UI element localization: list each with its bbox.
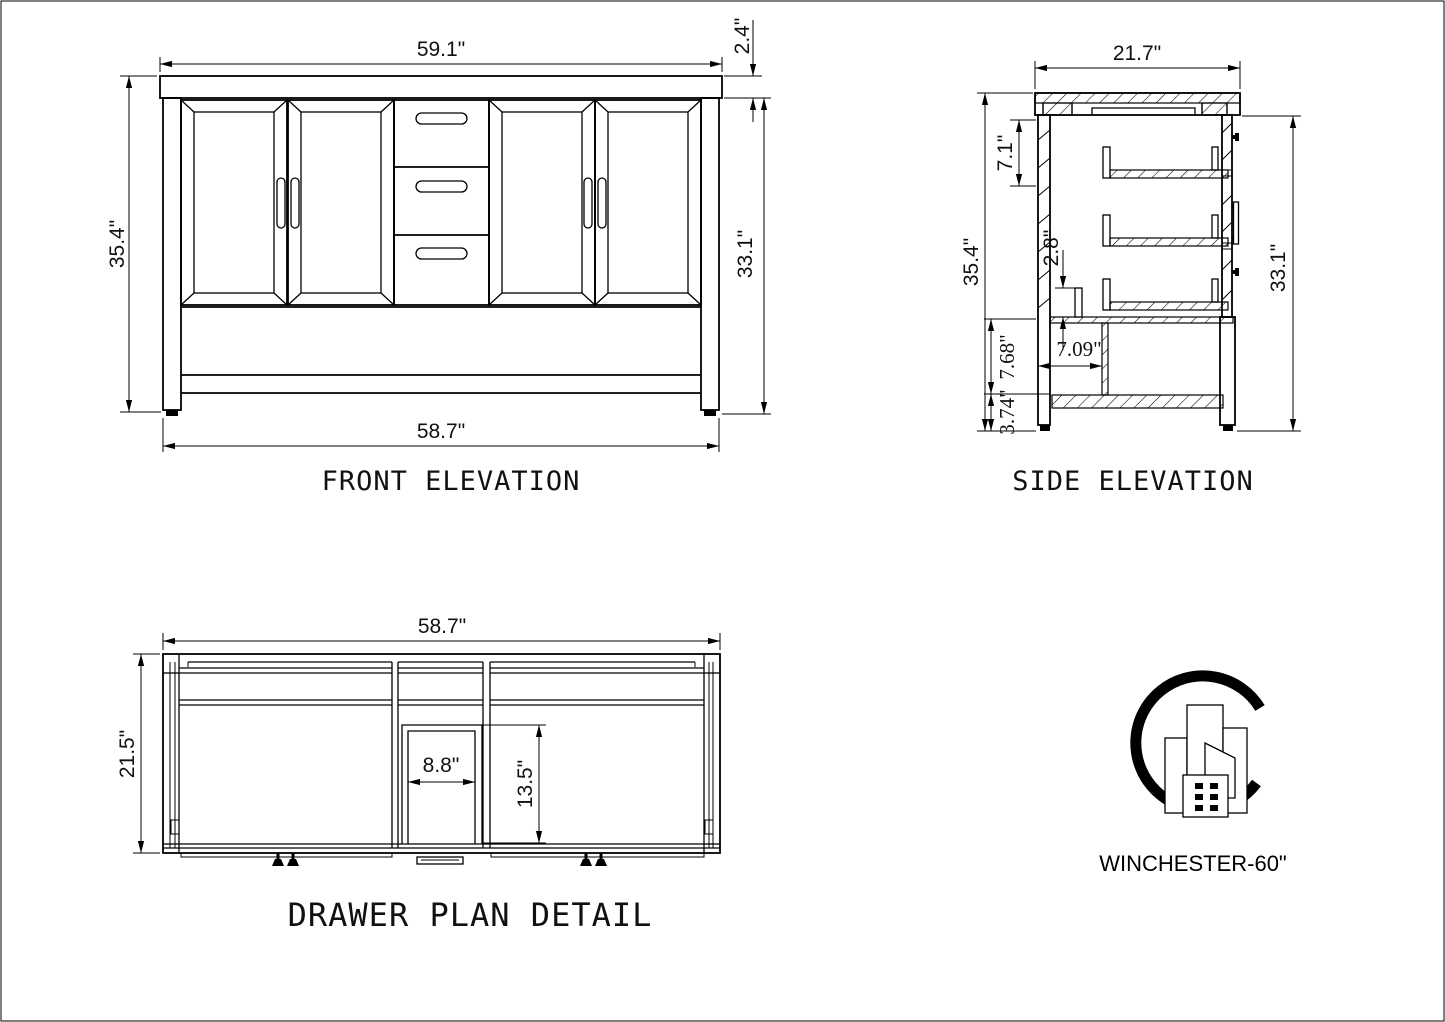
front-foot-left <box>166 410 178 416</box>
side-drawer-box-1 <box>1103 147 1228 178</box>
front-shelf-rails <box>181 375 701 393</box>
dim-label-plan-drawer-width: 8.8" <box>423 754 460 777</box>
product-name-label: WINCHESTER-60" <box>1099 851 1287 876</box>
dim-side-top-drawer-zone: 7.1" <box>994 120 1036 186</box>
drawer-plan-view: 58.7" 21.5" 8.8" 13.5" DRAWER PLAN DETAI… <box>116 615 720 934</box>
front-door-1 <box>181 100 287 305</box>
dim-label-side-stretcher-height: 2.8" <box>1040 230 1063 267</box>
front-cabinet-drawing <box>160 76 722 416</box>
dim-side-shelf-depth: 7.09" <box>1038 337 1102 366</box>
dim-side-leg-height: 3.74" <box>991 389 1019 434</box>
side-knob-bottom <box>1232 268 1239 276</box>
side-front-face <box>1222 115 1232 317</box>
dim-label-front-cabinet-height: 33.1" <box>734 230 757 278</box>
side-cabinet-drawing <box>1035 93 1240 431</box>
dim-label-front-base-width: 58.7" <box>417 420 465 443</box>
front-drawer-handle-1 <box>416 113 467 124</box>
plan-front-rails <box>163 844 720 864</box>
plan-view-title: DRAWER PLAN DETAIL <box>288 896 653 934</box>
dim-label-side-top-drawer-zone: 7.1" <box>994 135 1017 172</box>
dim-front-counter-width: 59.1" <box>160 38 722 72</box>
dim-front-overall-height: 35.4" <box>106 76 161 412</box>
front-door-handle-2 <box>291 178 299 228</box>
side-shelf-divider <box>1102 323 1108 395</box>
dim-label-side-shelf-clearance: 7.68" <box>995 334 1019 379</box>
dim-label-side-leg-height: 3.74" <box>995 389 1019 434</box>
front-drawer-handle-2 <box>416 181 467 192</box>
side-door-handle <box>1232 202 1239 244</box>
drawing-sheet: 59.1" 2.4" 35.4" 33.1" 58.7" FRONT ELE <box>0 0 1445 1022</box>
side-drawer-box-2 <box>1103 215 1228 246</box>
plan-left-wall <box>170 662 179 848</box>
side-stretcher-bar <box>1075 288 1082 317</box>
front-elevation-view: 59.1" 2.4" 35.4" 33.1" 58.7" FRONT ELE <box>106 18 771 497</box>
brand-logo: WINCHESTER-60" <box>1099 676 1287 876</box>
front-door-handle-1 <box>277 178 285 228</box>
dim-plan-depth: 21.5" <box>116 654 160 853</box>
dim-plan-drawer-depth: 13.5" <box>482 725 546 843</box>
side-countertop <box>1035 93 1240 115</box>
dim-front-base-width: 58.7" <box>163 418 719 452</box>
dim-label-plan-drawer-depth: 13.5" <box>514 760 537 808</box>
dim-label-front-overall-height: 35.4" <box>106 220 129 268</box>
plan-right-wall <box>705 662 713 848</box>
front-drawer-handle-3 <box>416 248 467 259</box>
side-back-foot <box>1040 425 1050 431</box>
front-door-handle-4 <box>598 178 606 228</box>
side-elevation-view: 21.7" 35.4" 7.1" 2.8" 33.1" <box>960 42 1301 497</box>
dim-label-plan-width: 58.7" <box>418 615 466 638</box>
logo-skyline <box>1165 705 1247 817</box>
dim-label-plan-depth: 21.5" <box>116 730 139 778</box>
side-drawer-box-3 <box>1103 279 1228 310</box>
front-drawer-bank <box>394 100 489 305</box>
technical-drawing-canvas: 59.1" 2.4" 35.4" 33.1" 58.7" FRONT ELE <box>0 0 1445 1022</box>
front-countertop <box>160 76 722 98</box>
plan-drawer-box <box>402 725 482 844</box>
dim-label-side-cabinet-height: 33.1" <box>1267 244 1290 292</box>
dim-label-side-depth: 21.7" <box>1113 42 1161 65</box>
front-foot-right <box>704 410 716 416</box>
side-bottom-shelf <box>1052 395 1223 408</box>
dim-label-side-overall-height: 35.4" <box>960 238 983 286</box>
side-back-wall <box>1038 115 1050 425</box>
dim-side-stretcher-height: 2.8" <box>1040 230 1075 350</box>
side-knob-top <box>1232 133 1239 141</box>
dim-label-side-shelf-depth: 7.09" <box>1056 337 1101 361</box>
front-door-handle-3 <box>584 178 592 228</box>
side-front-foot <box>1223 425 1233 431</box>
front-left-stile <box>163 98 181 410</box>
dim-plan-width: 58.7" <box>163 615 720 650</box>
dim-plan-drawer-width: 8.8" <box>408 754 475 782</box>
dim-label-front-counter-thickness: 2.4" <box>731 18 754 55</box>
dim-side-shelf-clearance: 7.68" <box>984 319 1050 394</box>
dim-front-cabinet-height: 33.1" <box>722 98 771 414</box>
front-right-stile <box>701 98 719 410</box>
front-view-title: FRONT ELEVATION <box>322 466 581 497</box>
side-bottom-panel <box>1050 317 1233 323</box>
front-door-3 <box>489 100 595 305</box>
side-view-title: SIDE ELEVATION <box>1012 466 1254 497</box>
front-door-2 <box>288 100 394 305</box>
side-front-leg <box>1220 317 1235 425</box>
logo-building-front <box>1183 775 1228 817</box>
dim-side-cabinet-height: 33.1" <box>1237 116 1301 431</box>
dim-label-front-counter-width: 59.1" <box>417 38 465 61</box>
plan-back-rails <box>179 662 704 705</box>
dim-side-depth: 21.7" <box>1035 42 1240 89</box>
front-door-4 <box>595 100 701 305</box>
